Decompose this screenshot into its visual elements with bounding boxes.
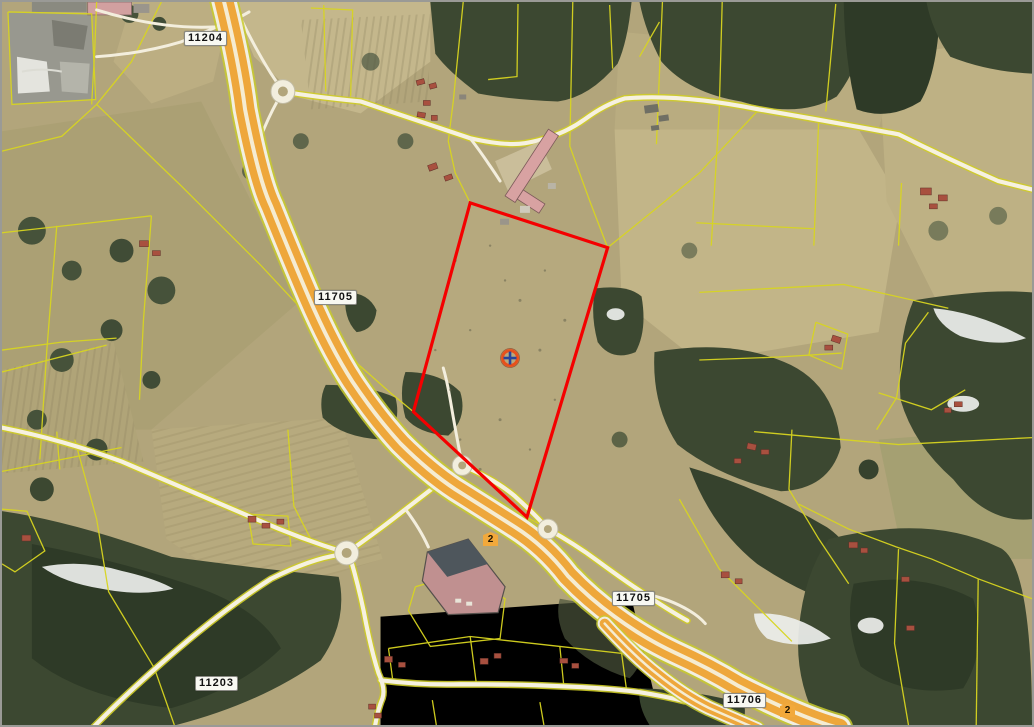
roundabout (335, 541, 359, 565)
road-label-11203: 11203 (195, 676, 238, 691)
road-label-11204: 11204 (184, 31, 227, 46)
roundabout (538, 519, 558, 539)
crosshair-circle-marker (501, 349, 520, 368)
map-viewport[interactable]: 11204 11705 11203 11705 11706 2 2 (0, 0, 1034, 727)
road-label-11706: 11706 (723, 693, 766, 708)
shed (459, 94, 466, 99)
aerial-map-canvas[interactable] (2, 2, 1032, 725)
road-label-11705-north: 11705 (314, 290, 357, 305)
road-label-11705-south: 11705 (612, 591, 655, 606)
roundabout (271, 80, 295, 104)
